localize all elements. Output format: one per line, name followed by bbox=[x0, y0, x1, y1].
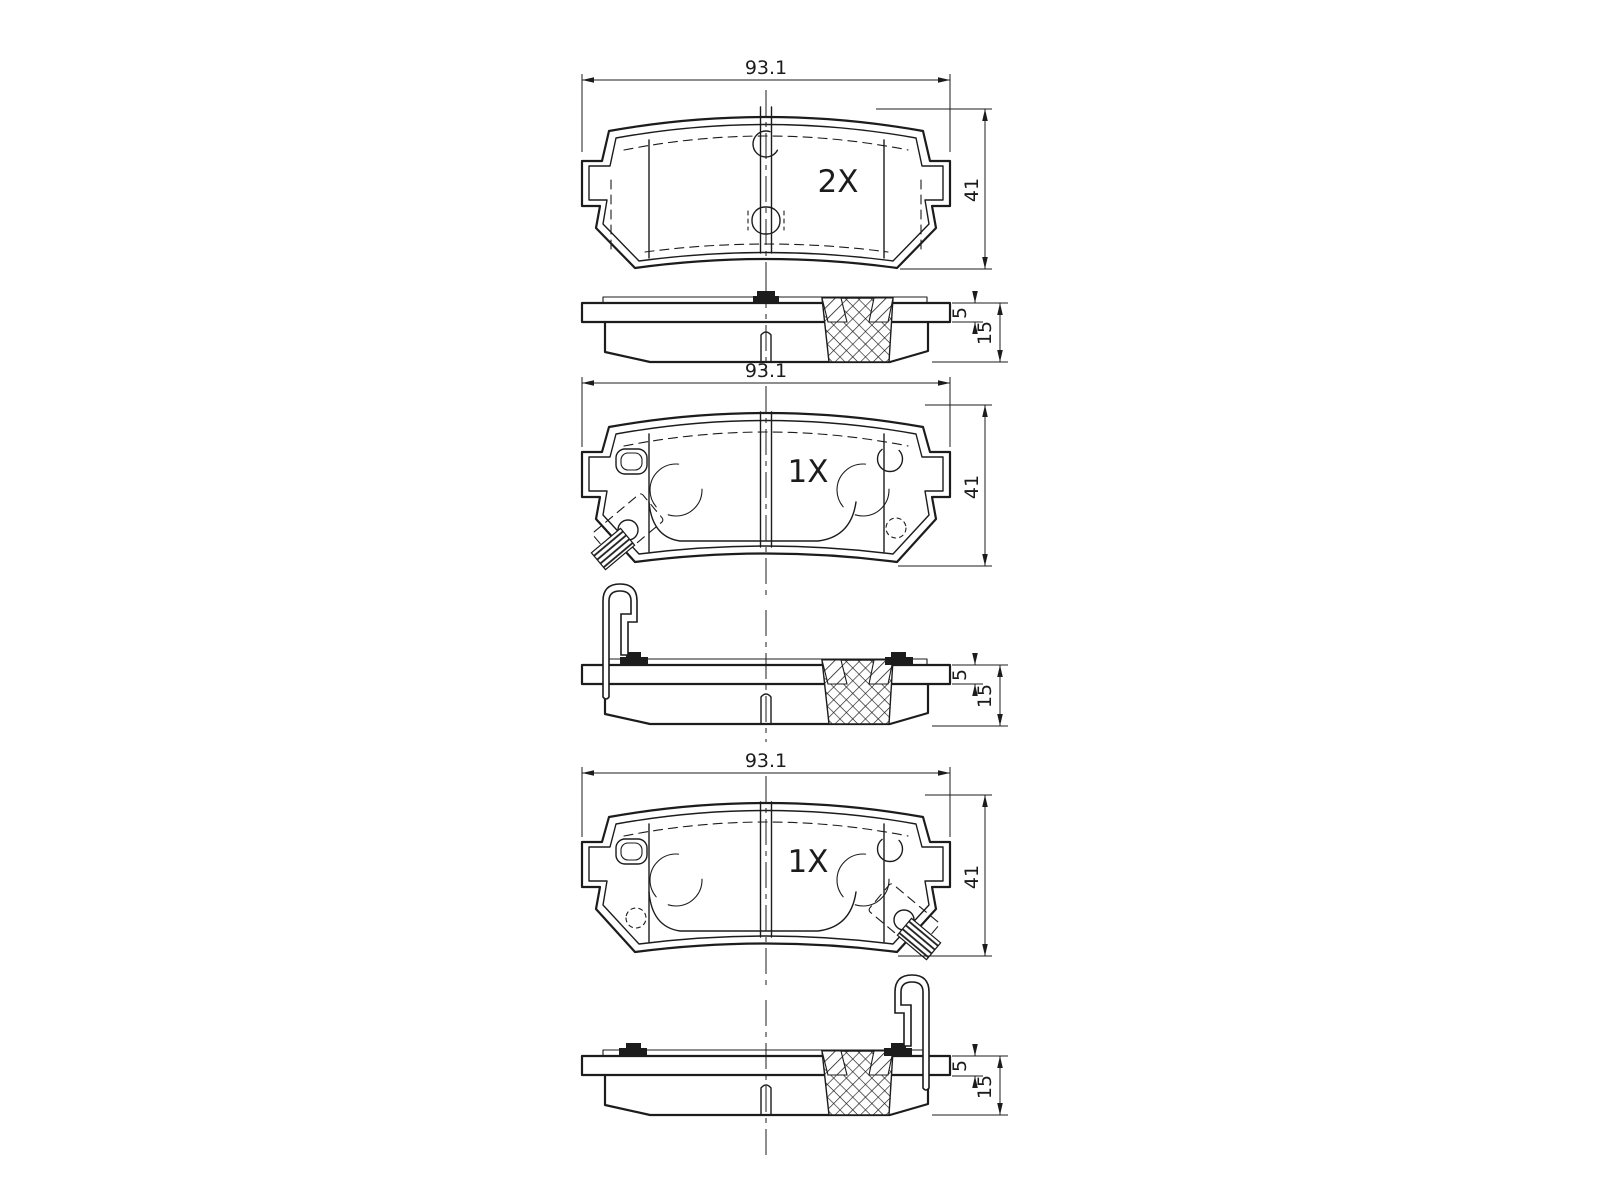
total-thickness-label: 15 bbox=[974, 684, 996, 708]
height-dimension-label: 41 bbox=[961, 865, 983, 889]
quantity-label: 1X bbox=[788, 454, 829, 490]
figure-top-backplate: 2X 93.1 41 5 15 bbox=[582, 57, 1008, 372]
technical-drawing-canvas: 2X 93.1 41 5 15 bbox=[0, 0, 1600, 1200]
total-thickness-label: 15 bbox=[974, 1075, 996, 1099]
width-dimension-label: 93.1 bbox=[745, 360, 787, 382]
front-view bbox=[582, 386, 950, 600]
chamfer-dashed-bottom bbox=[645, 244, 888, 252]
height-dimension-label: 41 bbox=[961, 475, 983, 499]
total-thickness-label: 15 bbox=[974, 321, 996, 345]
brake-pad-drawing: 2X 93.1 41 5 15 bbox=[0, 0, 1600, 1200]
front-view bbox=[582, 776, 950, 990]
figure-bottom-friction-right: 1X 93.1 41 5 15 bbox=[582, 750, 1008, 1160]
width-dimension-label: 93.1 bbox=[745, 750, 787, 772]
plate-thickness-label: 5 bbox=[949, 1060, 971, 1072]
figure-middle-friction-left: 1X 93.1 41 5 15 bbox=[582, 360, 1008, 742]
thickness-dimensions bbox=[932, 1044, 1008, 1115]
quantity-label: 2X bbox=[818, 164, 859, 200]
height-dimension-label: 41 bbox=[961, 178, 983, 202]
width-dimension-label: 93.1 bbox=[745, 57, 787, 79]
plate-thickness-label: 5 bbox=[949, 669, 971, 681]
thickness-dimensions bbox=[932, 291, 1008, 362]
quantity-label: 1X bbox=[788, 844, 829, 880]
plate-thickness-label: 5 bbox=[949, 307, 971, 319]
